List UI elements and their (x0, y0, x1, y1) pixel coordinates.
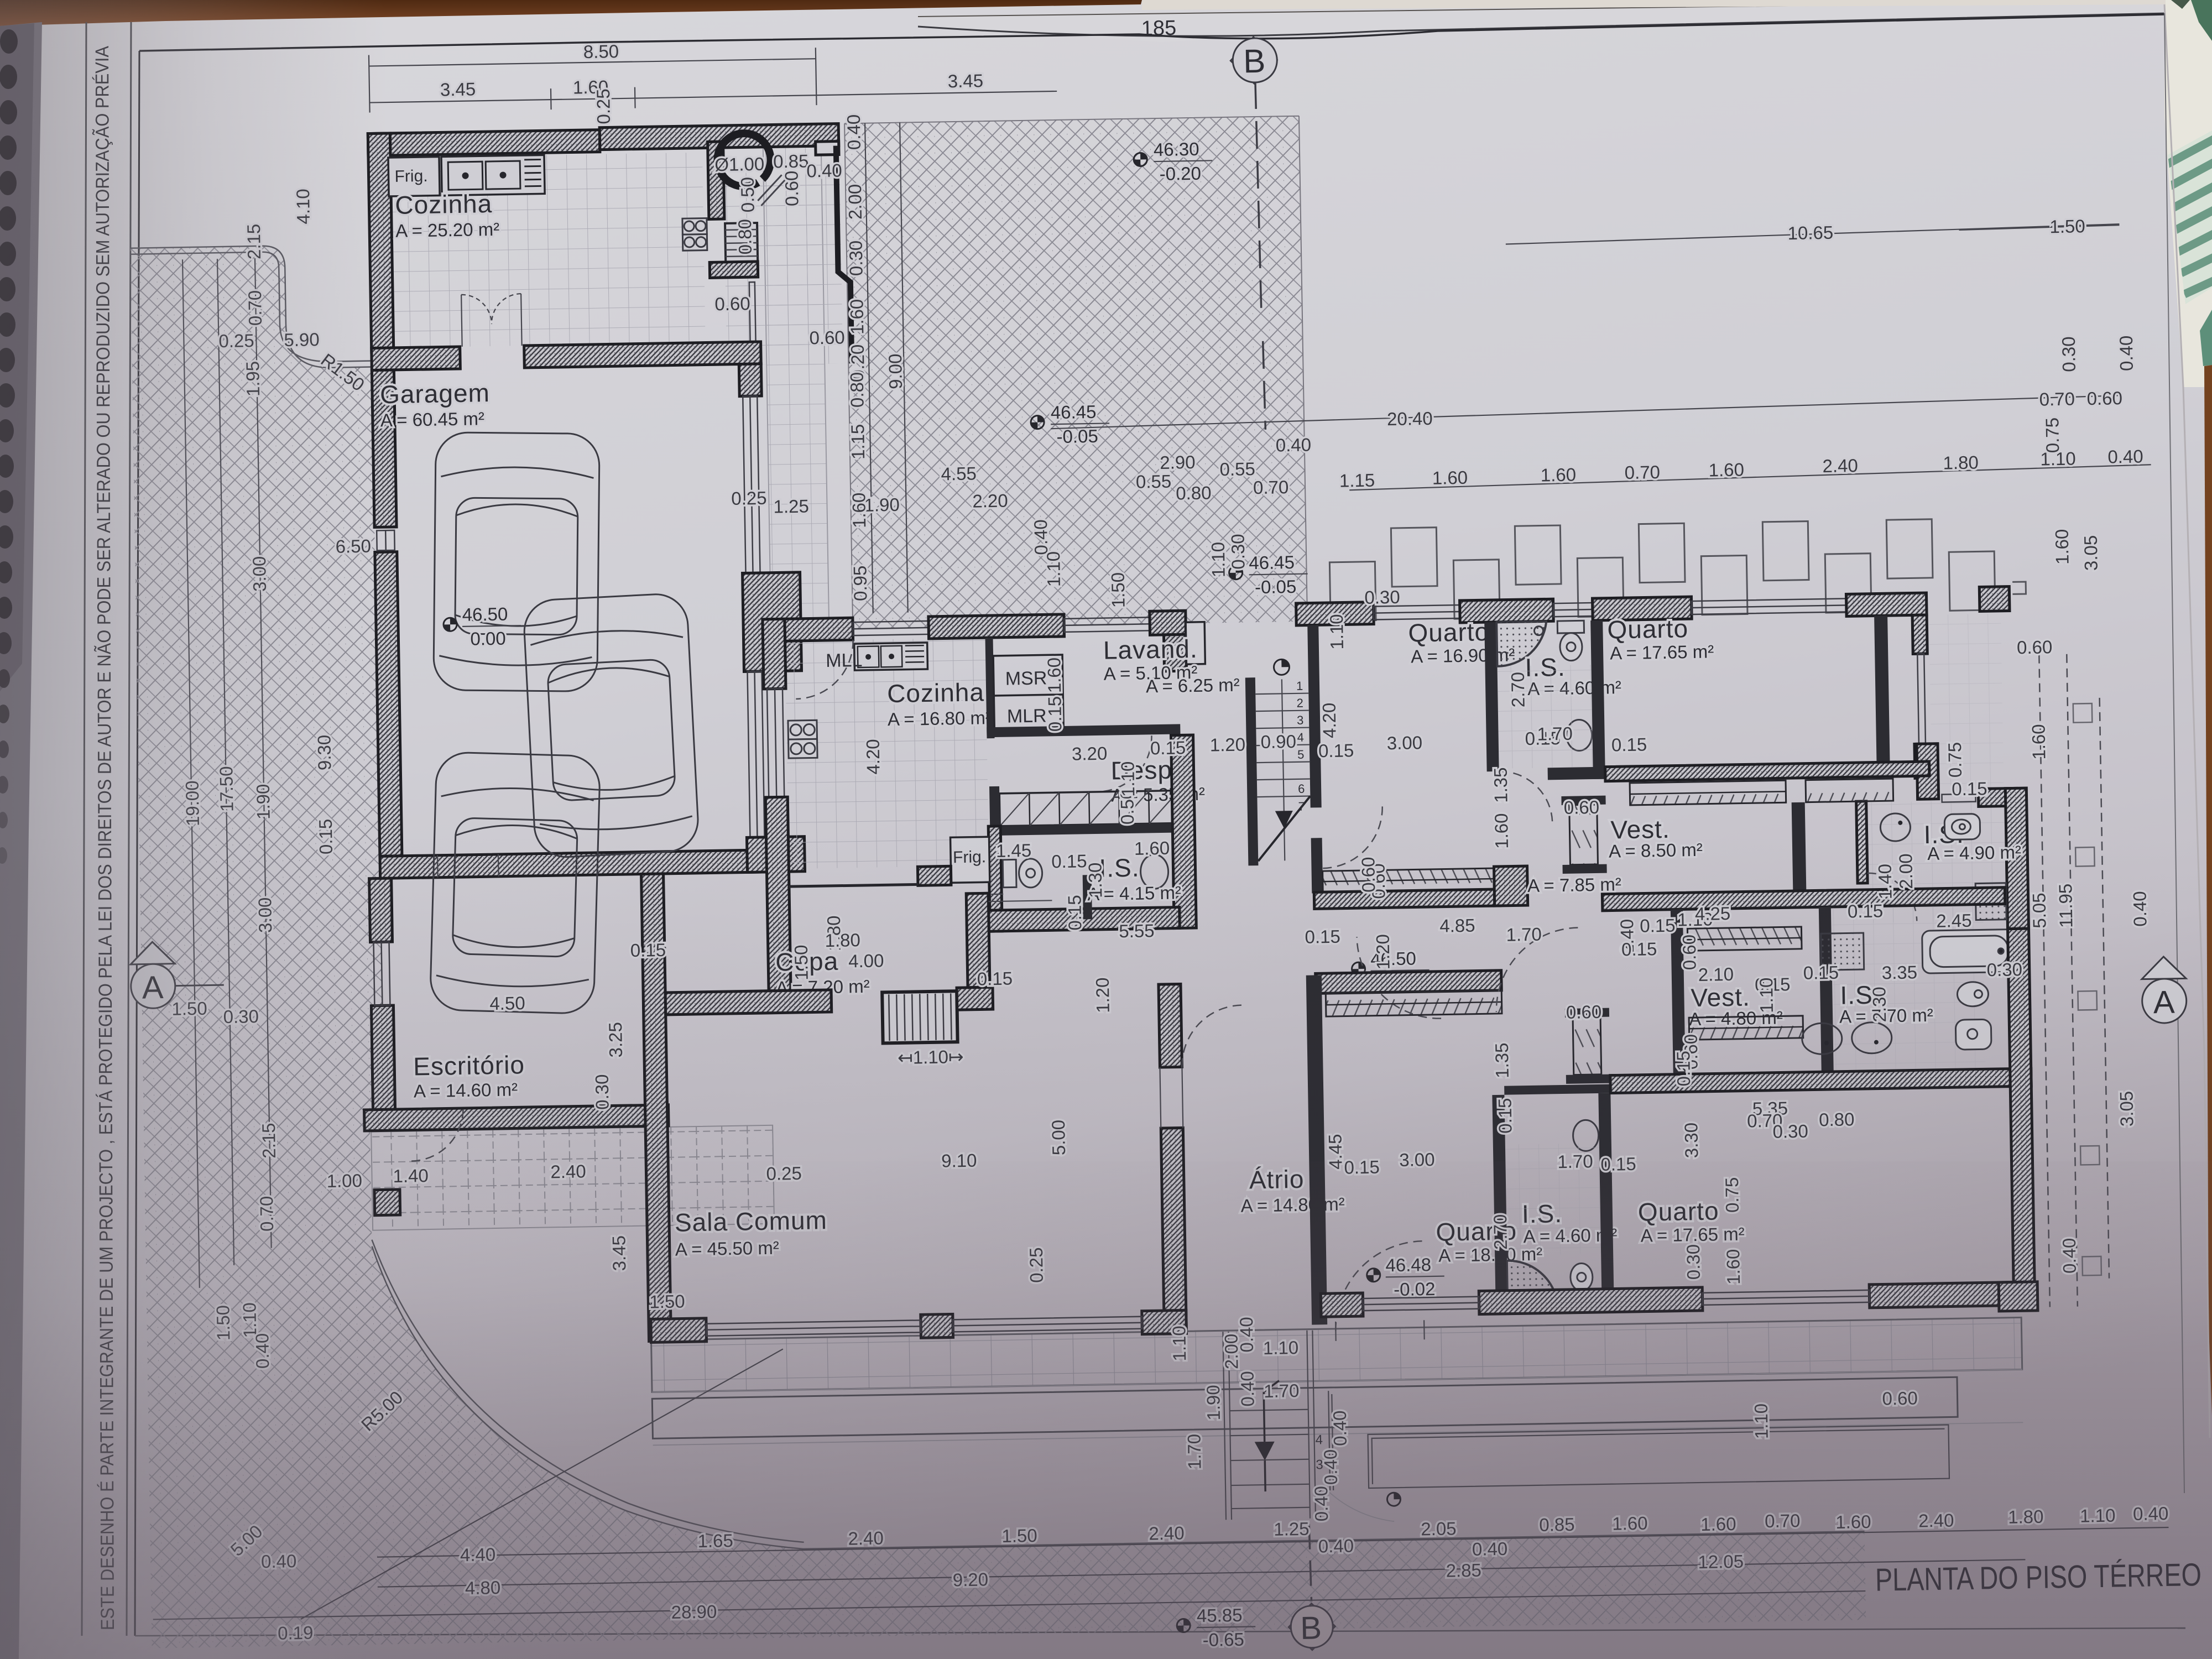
svg-text:0.40: 0.40 (1030, 519, 1051, 555)
svg-text:2.90: 2.90 (1160, 452, 1196, 473)
svg-text:2.40: 2.40 (1822, 455, 1858, 476)
svg-text:5: 5 (1297, 748, 1305, 761)
svg-text:0.40: 0.40 (1276, 434, 1312, 455)
svg-text:0.80: 0.80 (1176, 482, 1212, 503)
svg-text:1.20: 1.20 (1210, 734, 1246, 755)
svg-text:1.50: 1.50 (2049, 216, 2085, 237)
svg-text:0.70: 0.70 (1624, 462, 1660, 483)
svg-text:20.40: 20.40 (1387, 408, 1433, 429)
svg-text:0.80: 0.80 (847, 372, 868, 408)
svg-text:0.30: 0.30 (1364, 587, 1400, 608)
svg-text:2.70: 2.70 (1507, 672, 1528, 708)
svg-text:3.05: 3.05 (2080, 535, 2101, 571)
svg-text:1.10: 1.10 (1326, 614, 1347, 650)
svg-text:1.50: 1.50 (1108, 572, 1129, 608)
svg-text:0.90: 0.90 (1260, 731, 1296, 752)
svg-text:0.40: 0.40 (843, 114, 864, 150)
svg-text:0.75: 0.75 (2042, 418, 2063, 453)
svg-text:Cozinha: Cozinha (887, 677, 985, 708)
svg-text:Quarto: Quarto (1408, 617, 1489, 647)
svg-text:0.30: 0.30 (2058, 336, 2079, 372)
svg-text:3.20: 3.20 (1072, 743, 1108, 764)
svg-text:0.55: 0.55 (1136, 471, 1172, 492)
svg-text:0.25: 0.25 (731, 488, 767, 509)
svg-text:0.60: 0.60 (714, 293, 750, 314)
svg-text:1.80: 1.80 (1943, 452, 1979, 473)
svg-text:0.60: 0.60 (2086, 388, 2122, 409)
svg-text:1.60: 1.60 (1708, 459, 1744, 480)
svg-text:Ø1.00: Ø1.00 (714, 154, 765, 175)
svg-text:MSR: MSR (1005, 667, 1047, 689)
svg-text:1.60: 1.60 (1432, 467, 1468, 488)
svg-text:46.50: 46.50 (462, 604, 508, 625)
svg-text:0.40: 0.40 (2107, 446, 2143, 467)
svg-text:1: 1 (1296, 679, 1303, 693)
svg-text:1.70: 1.70 (1537, 723, 1573, 744)
svg-text:3.45: 3.45 (440, 79, 476, 100)
svg-text:0.60: 0.60 (781, 170, 802, 206)
svg-text:1.10: 1.10 (1208, 542, 1229, 578)
svg-text:10.65: 10.65 (1787, 222, 1833, 243)
svg-text:-0.20: -0.20 (1159, 163, 1201, 184)
svg-text:1.60: 1.60 (1540, 464, 1576, 485)
svg-text:4.55: 4.55 (941, 463, 977, 484)
svg-text:8.50: 8.50 (583, 41, 619, 62)
svg-text:0.70: 0.70 (1253, 477, 1289, 498)
svg-text:0.60: 0.60 (809, 327, 845, 348)
svg-text:1.35: 1.35 (1490, 767, 1511, 803)
svg-text:2.20: 2.20 (972, 491, 1008, 512)
svg-text:0.30: 0.30 (1227, 534, 1248, 570)
svg-text:3: 3 (1297, 713, 1304, 727)
svg-text:MLR: MLR (1007, 705, 1047, 727)
svg-text:0.95: 0.95 (849, 565, 870, 601)
svg-text:4.20: 4.20 (863, 739, 884, 775)
svg-text:A = 6.25 m²: A = 6.25 m² (1146, 675, 1240, 697)
svg-text:9.00: 9.00 (885, 353, 906, 389)
svg-text:1.60: 1.60 (846, 299, 867, 335)
svg-text:46.45: 46.45 (1050, 401, 1096, 422)
svg-text:0.30: 0.30 (846, 240, 867, 276)
svg-text:3.00: 3.00 (1386, 732, 1422, 753)
svg-text:A = 25.20 m²: A = 25.20 m² (395, 219, 500, 241)
svg-text:2.00: 2.00 (844, 184, 865, 220)
svg-text:0.15: 0.15 (1150, 737, 1186, 758)
svg-text:0.75: 0.75 (1944, 742, 1965, 778)
svg-text:0.60: 0.60 (2017, 637, 2053, 658)
svg-text:0.15: 0.15 (1611, 734, 1647, 755)
svg-text:Lavand.: Lavand. (1103, 634, 1198, 665)
svg-text:B: B (1243, 43, 1266, 80)
svg-text:A = 17.65 m²: A = 17.65 m² (1610, 641, 1714, 663)
svg-text:-0.05: -0.05 (1255, 576, 1297, 597)
svg-text:0.00: 0.00 (470, 628, 506, 649)
svg-text:Garagem: Garagem (380, 378, 491, 409)
svg-text:1.15: 1.15 (1339, 470, 1375, 491)
svg-text:0.40: 0.40 (2116, 335, 2137, 371)
svg-text:1.10: 1.10 (1117, 761, 1138, 797)
svg-text:0.15: 0.15 (1044, 696, 1065, 732)
svg-text:1.60: 1.60 (2052, 529, 2073, 565)
svg-text:1.25: 1.25 (773, 495, 809, 517)
svg-text:0.60: 0.60 (1563, 797, 1599, 818)
svg-text:1.60: 1.60 (1044, 658, 1065, 693)
svg-text:6: 6 (1298, 782, 1305, 796)
svg-text:0.85: 0.85 (773, 150, 809, 171)
svg-text:0.80: 0.80 (734, 219, 755, 255)
svg-text:0.55: 0.55 (1219, 458, 1255, 479)
svg-text:0.15: 0.15 (1952, 778, 1987, 799)
svg-text:A = 60.45 m²: A = 60.45 m² (380, 408, 485, 430)
svg-text:4.20: 4.20 (1319, 702, 1340, 738)
svg-text:7: 7 (1298, 800, 1305, 813)
svg-text:3.45: 3.45 (948, 70, 984, 91)
svg-text:Cozinha: Cozinha (395, 189, 493, 220)
svg-text:MLL: MLL (826, 650, 863, 671)
svg-text:46.45: 46.45 (1249, 552, 1295, 573)
svg-text:A = 16.80 m²: A = 16.80 m² (888, 707, 992, 729)
svg-text:0.15: 0.15 (1318, 740, 1354, 761)
svg-text:0.40: 0.40 (806, 160, 842, 181)
svg-text:4: 4 (1297, 731, 1304, 744)
svg-text:0.70: 0.70 (2039, 389, 2075, 410)
svg-text:Frig.: Frig. (394, 167, 428, 186)
svg-text:0.50: 0.50 (737, 177, 758, 213)
svg-text:1.90: 1.90 (864, 494, 900, 515)
svg-text:0.25: 0.25 (593, 88, 614, 124)
svg-text:1.60: 1.60 (2028, 724, 2049, 760)
svg-text:1.15: 1.15 (847, 424, 868, 460)
svg-text:1.10: 1.10 (1043, 551, 1064, 587)
svg-text:Quarto: Quarto (1607, 614, 1688, 644)
svg-text:2: 2 (1296, 696, 1303, 710)
svg-text:46.30: 46.30 (1154, 139, 1199, 160)
svg-text:1.60: 1.60 (848, 492, 869, 528)
